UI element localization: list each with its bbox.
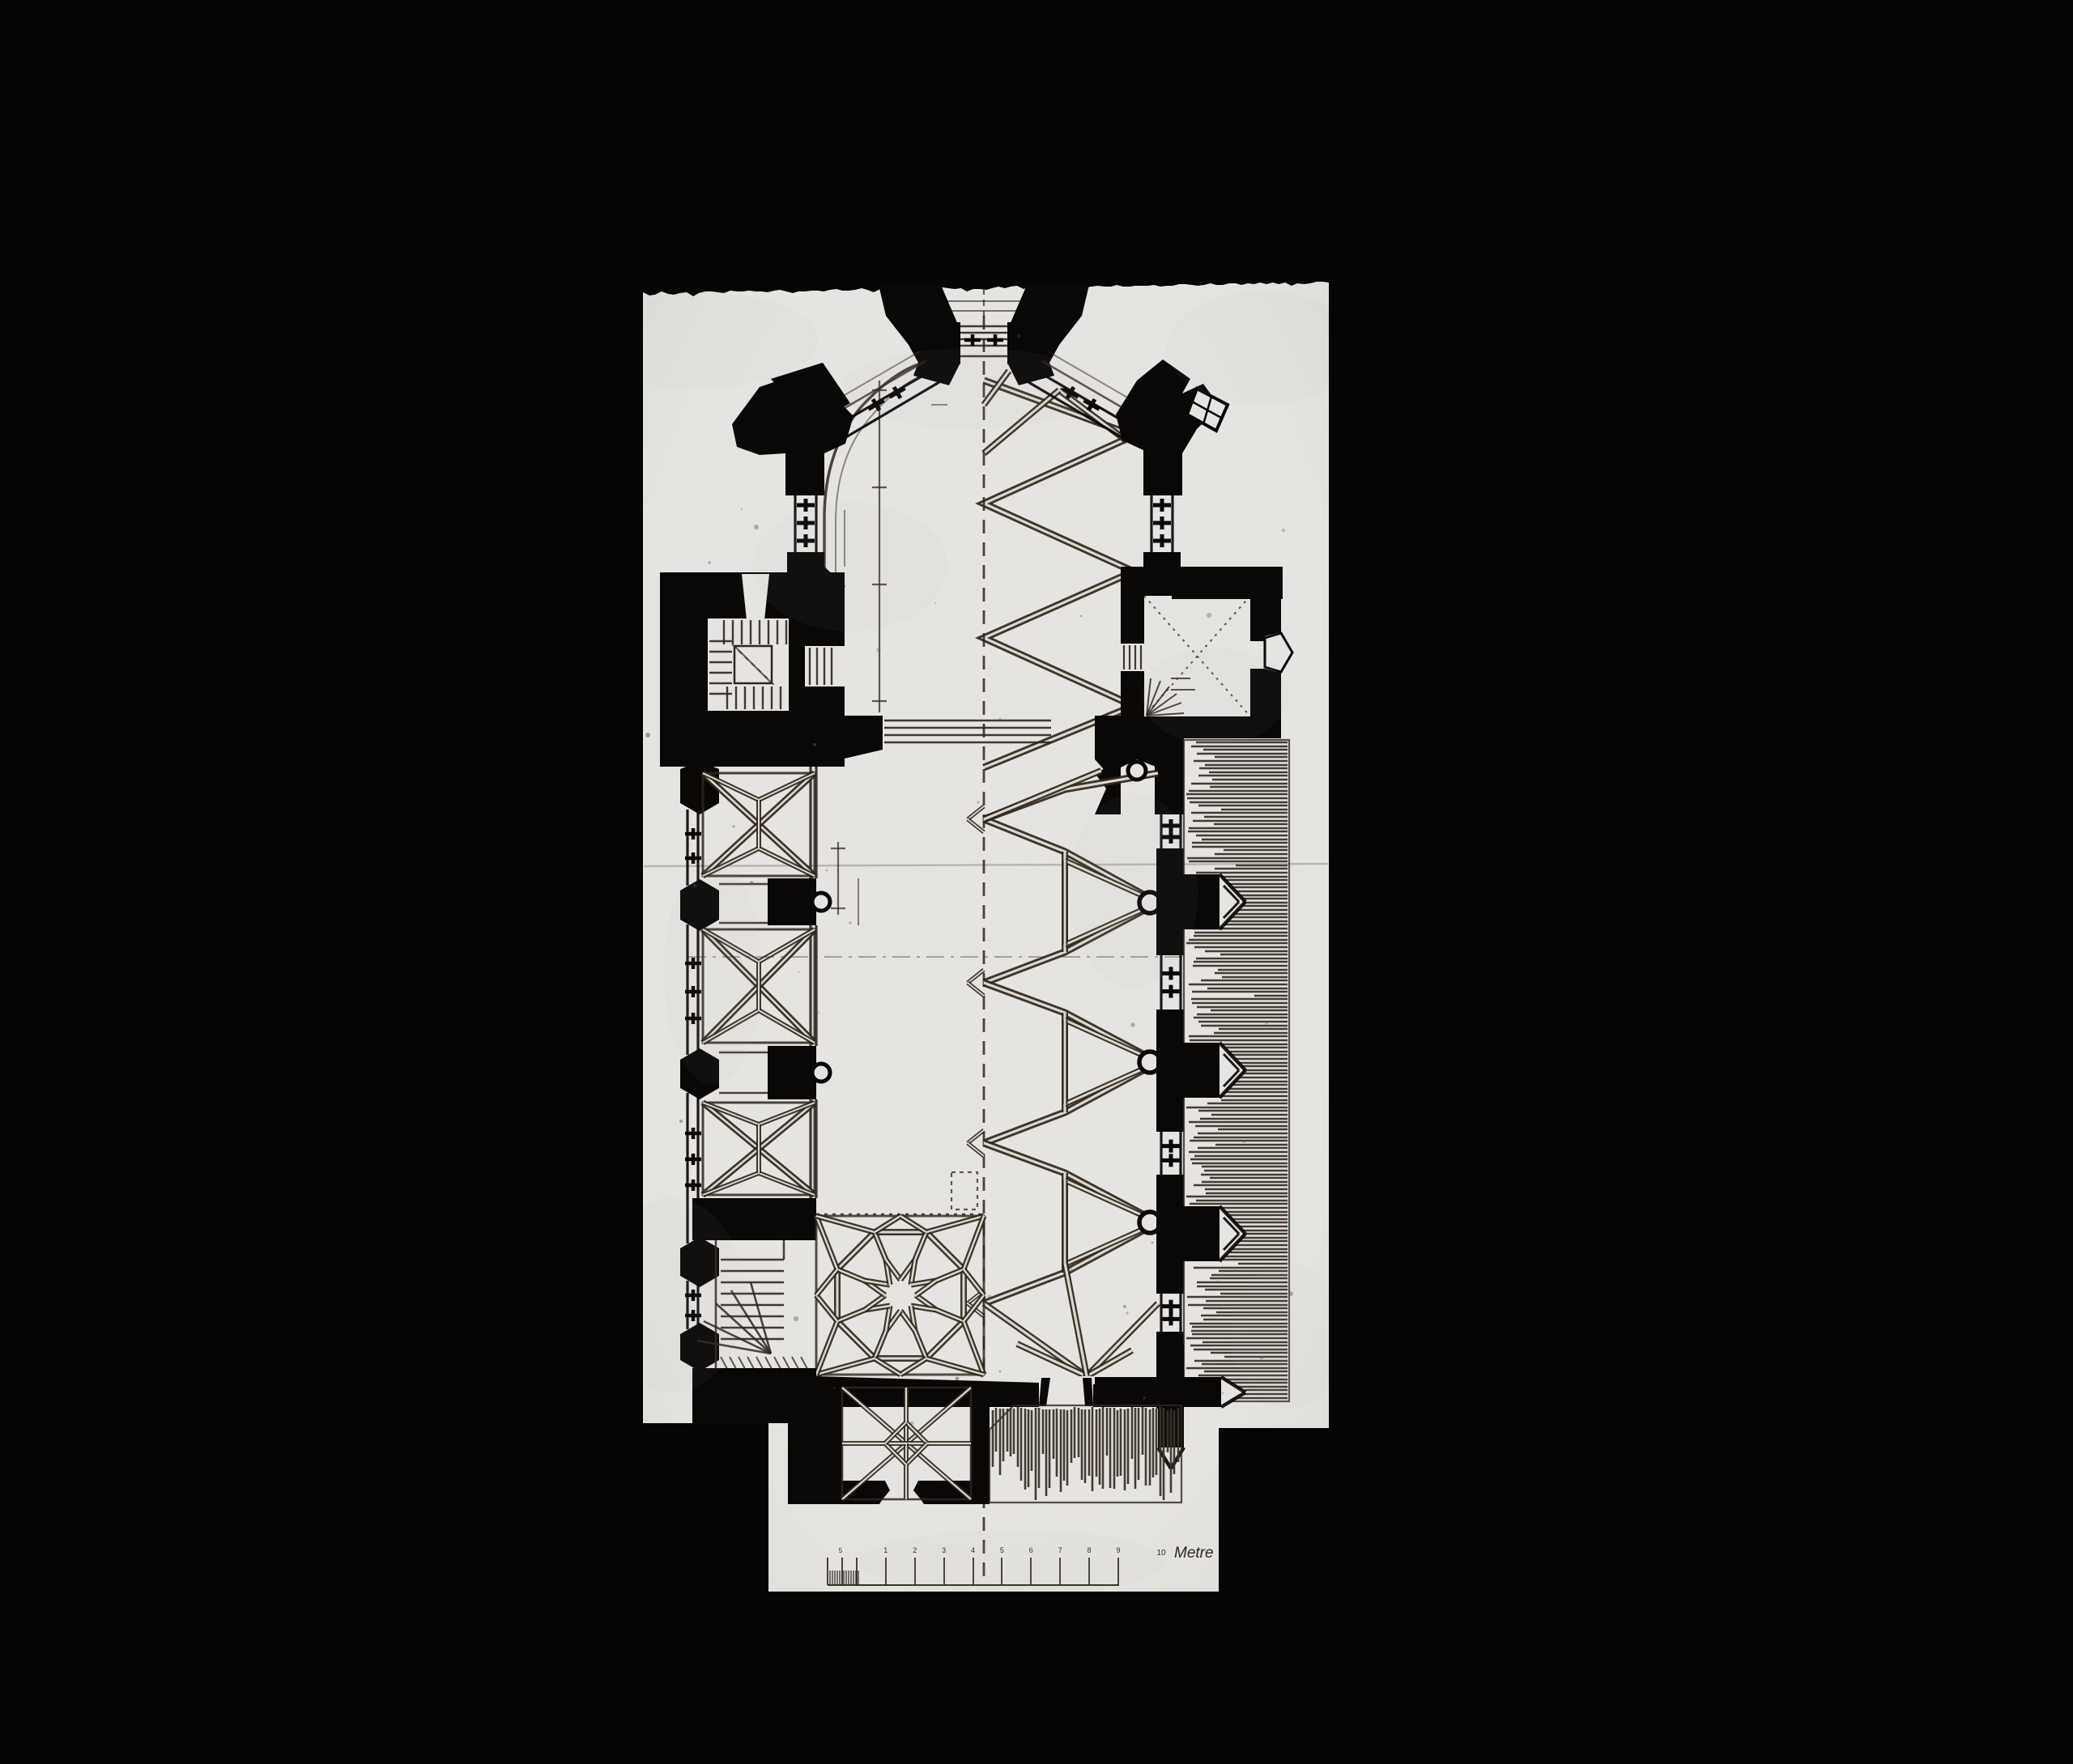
- svg-text:Metre: Metre: [1174, 1545, 1214, 1562]
- svg-text:5: 5: [839, 1547, 843, 1554]
